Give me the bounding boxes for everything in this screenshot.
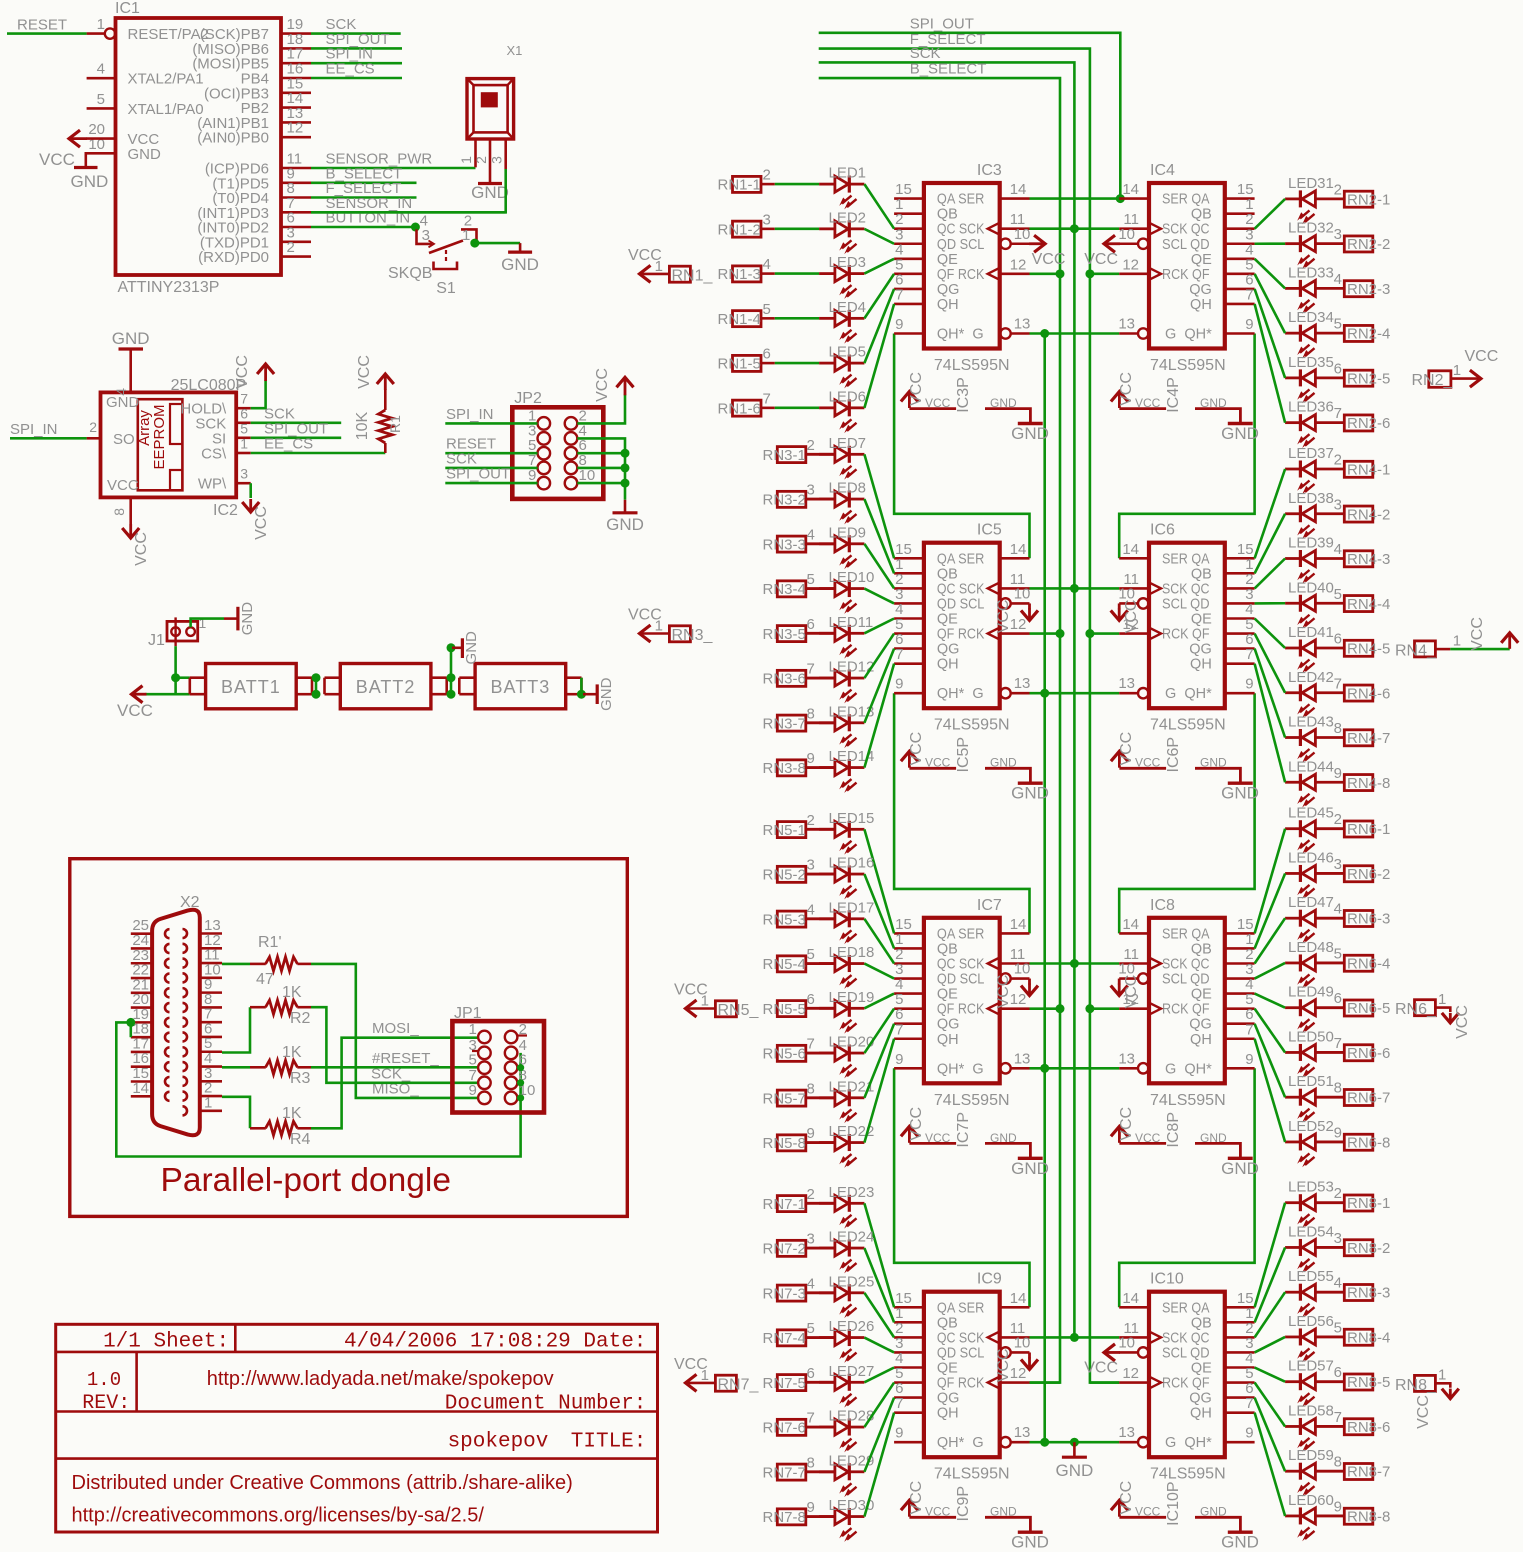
- svg-text:RN6-4: RN6-4: [1347, 955, 1390, 972]
- svg-text:LED46: LED46: [1288, 849, 1334, 866]
- svg-text:RN1-6: RN1-6: [718, 400, 761, 417]
- svg-text:IC9P: IC9P: [955, 1486, 972, 1522]
- svg-text:RN6-8: RN6-8: [1347, 1134, 1390, 1151]
- svg-text:4: 4: [1334, 271, 1342, 288]
- svg-text:5: 5: [807, 571, 815, 588]
- svg-text:IC2: IC2: [213, 502, 238, 519]
- svg-text:RN2-6: RN2-6: [1347, 415, 1390, 432]
- svg-text:RN1-2: RN1-2: [718, 221, 761, 238]
- svg-text:RN4-8: RN4-8: [1347, 775, 1390, 792]
- svg-text:J1: J1: [148, 632, 165, 649]
- svg-text:BATT3: BATT3: [491, 677, 551, 697]
- svg-text:R1': R1': [258, 934, 282, 951]
- svg-text:IC5P: IC5P: [955, 737, 972, 773]
- svg-text:QB: QB: [1191, 941, 1212, 957]
- svg-text:GND: GND: [1056, 1461, 1094, 1480]
- svg-text:6: 6: [807, 991, 815, 1008]
- svg-text:QF RCK: QF RCK: [937, 1002, 985, 1018]
- svg-text:3: 3: [1334, 496, 1342, 513]
- svg-text:QE: QE: [1191, 252, 1212, 268]
- svg-text:4: 4: [807, 1275, 815, 1292]
- svg-text:7: 7: [1245, 286, 1253, 303]
- svg-text:VCC: VCC: [1454, 1005, 1471, 1039]
- svg-text:IC5: IC5: [977, 522, 1002, 539]
- svg-text:4/04/2006 17:08:29 Date:: 4/04/2006 17:08:29 Date:: [344, 1331, 646, 1354]
- svg-text:QB: QB: [937, 566, 958, 582]
- svg-text:QB: QB: [937, 207, 958, 223]
- svg-text:4: 4: [763, 256, 771, 273]
- svg-text:VCC: VCC: [1118, 1481, 1135, 1515]
- svg-text:G: G: [1165, 1061, 1176, 1077]
- svg-text:QC SCK: QC SCK: [937, 1330, 985, 1346]
- svg-text:LED33: LED33: [1288, 264, 1334, 281]
- svg-text:9: 9: [469, 1082, 477, 1099]
- svg-text:QA SER: QA SER: [937, 926, 985, 942]
- svg-text:LED42: LED42: [1288, 669, 1334, 686]
- svg-text:1: 1: [1438, 991, 1446, 1008]
- svg-text:1: 1: [97, 16, 105, 33]
- svg-text:3: 3: [489, 156, 505, 164]
- svg-text:RN3-2: RN3-2: [763, 492, 806, 509]
- svg-text:RCK QF: RCK QF: [1162, 1002, 1210, 1018]
- svg-text:SCL QD: SCL QD: [1162, 1345, 1210, 1361]
- svg-text:1.0: 1.0: [87, 1369, 121, 1391]
- svg-text:RN2-2: RN2-2: [1347, 236, 1390, 253]
- svg-text:QF RCK: QF RCK: [937, 1376, 985, 1392]
- svg-text:MOSI_: MOSI_: [372, 1020, 419, 1037]
- svg-text:9: 9: [807, 1125, 815, 1142]
- svg-text:10: 10: [1014, 226, 1031, 243]
- svg-text:G: G: [972, 1435, 983, 1451]
- svg-text:QB: QB: [1191, 566, 1212, 582]
- svg-text:5: 5: [240, 420, 248, 436]
- svg-text:14: 14: [1122, 1290, 1139, 1307]
- svg-text:QH*: QH*: [937, 1061, 965, 1077]
- svg-text:VCC: VCC: [253, 506, 270, 540]
- svg-text:GND: GND: [239, 602, 256, 636]
- svg-text:SCL QD: SCL QD: [1162, 972, 1210, 988]
- svg-text:RN7-8: RN7-8: [763, 1509, 806, 1526]
- svg-text:IC6: IC6: [1150, 522, 1175, 539]
- svg-text:RN3-3: RN3-3: [763, 536, 806, 553]
- svg-text:1K: 1K: [282, 1105, 302, 1122]
- svg-text:VCC: VCC: [925, 1505, 951, 1519]
- svg-text:RN2_: RN2_: [1412, 372, 1454, 389]
- svg-text:RN1-5: RN1-5: [718, 356, 761, 373]
- svg-text:G: G: [972, 1061, 983, 1077]
- svg-text:LED6: LED6: [829, 388, 867, 405]
- svg-text:GND: GND: [1011, 1159, 1049, 1178]
- svg-text:G: G: [1165, 686, 1176, 702]
- svg-text:XTAL2/PA1: XTAL2/PA1: [128, 71, 204, 88]
- svg-text:47: 47: [256, 971, 274, 988]
- svg-text:74LS595N: 74LS595N: [934, 1092, 1010, 1109]
- svg-text:LED10: LED10: [829, 569, 875, 586]
- svg-text:RN7_: RN7_: [718, 1376, 760, 1393]
- svg-text:7: 7: [1334, 405, 1342, 422]
- svg-text:QH: QH: [1190, 1032, 1212, 1048]
- svg-text:QE: QE: [937, 1361, 958, 1377]
- svg-text:VCC: VCC: [594, 368, 611, 402]
- svg-text:13: 13: [1014, 316, 1031, 333]
- svg-text:5: 5: [1334, 1319, 1342, 1336]
- svg-text:RN3-7: RN3-7: [763, 715, 806, 732]
- svg-text:SER QA: SER QA: [1162, 551, 1210, 567]
- svg-text:8: 8: [1334, 720, 1342, 737]
- svg-text:9: 9: [807, 750, 815, 767]
- svg-text:VCC: VCC: [628, 247, 662, 264]
- svg-text:6: 6: [1334, 990, 1342, 1007]
- svg-text:LED8: LED8: [829, 480, 867, 497]
- svg-text:4: 4: [1334, 1275, 1342, 1292]
- svg-text:LED51: LED51: [1288, 1073, 1334, 1090]
- svg-text:RN6-6: RN6-6: [1347, 1045, 1390, 1062]
- svg-text:R3: R3: [290, 1070, 311, 1087]
- svg-text:74LS595N: 74LS595N: [1150, 1466, 1226, 1483]
- svg-text:RN5-5: RN5-5: [763, 1001, 806, 1018]
- svg-text:RN5-6: RN5-6: [763, 1046, 806, 1063]
- svg-text:LED50: LED50: [1288, 1028, 1334, 1045]
- svg-text:RN8_: RN8_: [1395, 1377, 1437, 1394]
- svg-text:9: 9: [895, 676, 903, 693]
- svg-text:RN7-7: RN7-7: [763, 1464, 806, 1481]
- svg-text:GND: GND: [112, 329, 150, 348]
- svg-text:G: G: [972, 327, 983, 343]
- svg-text:IC9: IC9: [977, 1271, 1002, 1288]
- svg-text:JP2: JP2: [514, 390, 542, 407]
- svg-text:RN8-3: RN8-3: [1347, 1285, 1390, 1302]
- svg-text:LED26: LED26: [829, 1318, 875, 1335]
- svg-text:RN4_: RN4_: [1395, 643, 1437, 660]
- svg-text:QD SCL: QD SCL: [937, 1345, 985, 1361]
- svg-text:14: 14: [132, 1080, 149, 1097]
- svg-text:SO: SO: [113, 431, 135, 448]
- svg-text:RN8-5: RN8-5: [1347, 1374, 1390, 1391]
- svg-text:BATT2: BATT2: [356, 677, 416, 697]
- svg-text:1/1 Sheet:: 1/1 Sheet:: [103, 1331, 229, 1354]
- svg-text:VCC: VCC: [995, 600, 1012, 634]
- svg-text:RN1-4: RN1-4: [718, 311, 761, 328]
- svg-text:RN5-3: RN5-3: [763, 911, 806, 928]
- svg-text:5: 5: [97, 91, 105, 108]
- svg-text:QH*: QH*: [937, 327, 965, 343]
- svg-text:IC3: IC3: [977, 162, 1002, 179]
- svg-text:7: 7: [807, 1036, 815, 1053]
- svg-text:QF RCK: QF RCK: [937, 267, 985, 283]
- svg-text:74LS595N: 74LS595N: [934, 357, 1010, 374]
- svg-text:7: 7: [1245, 1021, 1253, 1038]
- svg-text:7: 7: [895, 646, 903, 663]
- svg-text:QG: QG: [937, 282, 960, 298]
- svg-text:QA SER: QA SER: [937, 551, 985, 567]
- svg-text:RN6-7: RN6-7: [1347, 1090, 1390, 1107]
- svg-text:13: 13: [1118, 675, 1135, 692]
- svg-text:8: 8: [1334, 1080, 1342, 1097]
- svg-text:LED16: LED16: [829, 855, 875, 872]
- svg-text:VCC: VCC: [39, 150, 75, 169]
- svg-text:SCK QC: SCK QC: [1162, 581, 1210, 597]
- svg-text:13: 13: [1118, 316, 1135, 333]
- svg-text:4: 4: [97, 61, 105, 78]
- svg-text:SKQB: SKQB: [388, 265, 432, 282]
- svg-text:RN4-5: RN4-5: [1347, 641, 1390, 658]
- svg-text:IC3P: IC3P: [955, 377, 972, 413]
- svg-text:74LS595N: 74LS595N: [1150, 1092, 1226, 1109]
- svg-text:LED41: LED41: [1288, 624, 1334, 641]
- svg-text:VCC: VCC: [1084, 1359, 1118, 1376]
- svg-text:VCC: VCC: [925, 756, 951, 770]
- svg-text:12: 12: [287, 120, 304, 137]
- svg-text:http://www.ladyada.net/make/sp: http://www.ladyada.net/make/spokepov: [207, 1368, 554, 1390]
- svg-text:9: 9: [895, 316, 903, 333]
- svg-text:13: 13: [1118, 1424, 1135, 1441]
- svg-text:7: 7: [1334, 1035, 1342, 1052]
- svg-text:QB: QB: [1191, 207, 1212, 223]
- svg-text:RN4-6: RN4-6: [1347, 685, 1390, 702]
- svg-text:7: 7: [1245, 646, 1253, 663]
- svg-text:RESET: RESET: [17, 17, 67, 34]
- svg-text:RN1-3: RN1-3: [718, 266, 761, 283]
- svg-text:RN5-7: RN5-7: [763, 1090, 806, 1107]
- svg-text:RN6_: RN6_: [1395, 1001, 1437, 1018]
- svg-text:SPI_OUT: SPI_OUT: [910, 15, 974, 32]
- svg-text:EEPROM: EEPROM: [151, 404, 168, 469]
- svg-text:1: 1: [458, 156, 474, 164]
- svg-text:VCC: VCC: [908, 732, 925, 766]
- svg-text:8: 8: [807, 1080, 815, 1097]
- svg-text:74LS595N: 74LS595N: [1150, 357, 1226, 374]
- svg-text:X2: X2: [180, 894, 200, 911]
- svg-text:GND: GND: [1221, 1533, 1259, 1552]
- svg-text:RN7-6: RN7-6: [763, 1420, 806, 1437]
- svg-text:G: G: [972, 686, 983, 702]
- svg-text:LED7: LED7: [829, 435, 867, 452]
- svg-text:VCC: VCC: [1135, 1505, 1161, 1519]
- svg-text:LED39: LED39: [1288, 535, 1334, 552]
- svg-text:RN2-5: RN2-5: [1347, 370, 1390, 387]
- svg-text:2: 2: [1334, 181, 1342, 198]
- svg-text:LED3: LED3: [829, 254, 867, 271]
- svg-text:RCK QF: RCK QF: [1162, 267, 1210, 283]
- svg-text:LED1: LED1: [829, 165, 867, 182]
- svg-text:GND: GND: [1011, 1533, 1049, 1552]
- svg-text:R4: R4: [290, 1131, 311, 1148]
- svg-text:LED27: LED27: [829, 1363, 875, 1380]
- svg-text:IC4P: IC4P: [1165, 377, 1182, 413]
- svg-text:QE: QE: [1191, 612, 1212, 628]
- svg-text:6: 6: [1334, 631, 1342, 648]
- svg-text:GND: GND: [1011, 424, 1049, 443]
- svg-text:LED40: LED40: [1288, 579, 1334, 596]
- svg-text:LED2: LED2: [829, 209, 867, 226]
- svg-text:QG: QG: [1189, 1017, 1212, 1033]
- svg-text:LED45: LED45: [1288, 805, 1334, 822]
- svg-text:IC8: IC8: [1150, 897, 1175, 914]
- svg-text:2: 2: [1334, 452, 1342, 469]
- svg-text:RN5-4: RN5-4: [763, 956, 806, 973]
- svg-text:LED38: LED38: [1288, 490, 1334, 507]
- svg-text:1: 1: [469, 1021, 477, 1038]
- svg-text:14: 14: [1122, 541, 1139, 558]
- svg-text:QH*: QH*: [937, 1435, 965, 1451]
- svg-text:1K: 1K: [282, 1044, 302, 1061]
- svg-text:2: 2: [807, 812, 815, 829]
- svg-text:LED60: LED60: [1288, 1492, 1334, 1509]
- svg-text:GND: GND: [1221, 784, 1259, 803]
- svg-text:QD SCL: QD SCL: [937, 596, 985, 612]
- svg-text:SPI_OUT: SPI_OUT: [446, 466, 510, 483]
- svg-text:QB: QB: [1191, 1315, 1212, 1331]
- svg-text:RN4-4: RN4-4: [1347, 596, 1390, 613]
- svg-text:LED59: LED59: [1288, 1447, 1334, 1464]
- svg-text:RN5-8: RN5-8: [763, 1135, 806, 1152]
- svg-text:7: 7: [807, 661, 815, 678]
- svg-text:RN1_: RN1_: [672, 267, 714, 284]
- svg-text:7: 7: [895, 286, 903, 303]
- svg-text:RN8-6: RN8-6: [1347, 1419, 1390, 1436]
- svg-text:GND: GND: [128, 146, 162, 163]
- svg-text:IC7P: IC7P: [955, 1112, 972, 1148]
- svg-text:5: 5: [1334, 945, 1342, 962]
- svg-text:LED49: LED49: [1288, 984, 1334, 1001]
- svg-text:CS\: CS\: [201, 446, 227, 463]
- svg-text:3: 3: [240, 466, 248, 482]
- svg-text:JP1: JP1: [454, 1005, 482, 1022]
- svg-text:VCC: VCC: [925, 396, 951, 410]
- svg-text:IC4: IC4: [1150, 162, 1175, 179]
- svg-text:3: 3: [807, 857, 815, 874]
- svg-text:14: 14: [1122, 181, 1139, 198]
- svg-text:LED52: LED52: [1288, 1118, 1334, 1135]
- svg-text:9: 9: [1245, 1051, 1253, 1068]
- svg-text:QC SCK: QC SCK: [937, 222, 985, 238]
- svg-text:VCC: VCC: [1118, 1107, 1135, 1141]
- svg-text:QD SCL: QD SCL: [937, 972, 985, 988]
- svg-text:http://creativecommons.org/lic: http://creativecommons.org/licenses/by-s…: [72, 1505, 485, 1527]
- svg-text:R2: R2: [290, 1010, 311, 1027]
- svg-text:VCC: VCC: [1469, 617, 1486, 651]
- svg-text:LED25: LED25: [829, 1273, 875, 1290]
- svg-text:7: 7: [1334, 1409, 1342, 1426]
- svg-text:RN4-7: RN4-7: [1347, 730, 1390, 747]
- svg-text:13: 13: [1014, 1050, 1031, 1067]
- svg-text:LED43: LED43: [1288, 714, 1334, 731]
- svg-text:RN8-2: RN8-2: [1347, 1240, 1390, 1257]
- svg-text:4: 4: [807, 526, 815, 543]
- svg-text:QH*: QH*: [1184, 1435, 1212, 1451]
- svg-text:RN2-3: RN2-3: [1347, 281, 1390, 298]
- svg-text:10: 10: [1118, 226, 1135, 243]
- svg-text:RN3-1: RN3-1: [763, 447, 806, 464]
- svg-text:13: 13: [1118, 1050, 1135, 1067]
- svg-text:6: 6: [807, 616, 815, 633]
- svg-text:IC1: IC1: [115, 0, 140, 17]
- svg-text:RN6-3: RN6-3: [1347, 911, 1390, 928]
- svg-text:9: 9: [807, 1499, 815, 1516]
- svg-text:Distributed under Creative Com: Distributed under Creative Commons (attr…: [72, 1472, 573, 1494]
- svg-text:3: 3: [1334, 1230, 1342, 1247]
- svg-text:LED31: LED31: [1288, 175, 1334, 192]
- svg-text:RN3-8: RN3-8: [763, 760, 806, 777]
- svg-text:VCC: VCC: [234, 355, 251, 389]
- svg-text:VCC: VCC: [1118, 372, 1135, 406]
- svg-text:RN4-2: RN4-2: [1347, 506, 1390, 523]
- svg-text:RN3-5: RN3-5: [763, 626, 806, 643]
- svg-text:RN7-3: RN7-3: [763, 1285, 806, 1302]
- svg-text:RN6-2: RN6-2: [1347, 866, 1390, 883]
- svg-text:RN5-2: RN5-2: [763, 867, 806, 884]
- svg-text:SPI_IN: SPI_IN: [10, 421, 58, 438]
- svg-text:VCC: VCC: [628, 607, 662, 624]
- svg-text:QC SCK: QC SCK: [937, 581, 985, 597]
- svg-text:VCC: VCC: [1118, 732, 1135, 766]
- svg-text:LED15: LED15: [829, 810, 875, 827]
- svg-text:QH: QH: [937, 1032, 959, 1048]
- svg-text:QD SCL: QD SCL: [937, 237, 985, 253]
- svg-text:LED4: LED4: [829, 299, 867, 316]
- svg-text:RN1-1: RN1-1: [718, 177, 761, 194]
- svg-text:RN8-4: RN8-4: [1347, 1329, 1390, 1346]
- svg-text:14: 14: [1010, 916, 1027, 933]
- svg-text:3: 3: [1334, 226, 1342, 243]
- svg-text:LED58: LED58: [1288, 1402, 1334, 1419]
- svg-text:QG: QG: [937, 1391, 960, 1407]
- svg-text:13: 13: [1014, 1424, 1031, 1441]
- svg-text:74LS595N: 74LS595N: [934, 717, 1010, 734]
- svg-text:SER QA: SER QA: [1162, 1300, 1210, 1316]
- svg-text:3: 3: [422, 227, 430, 244]
- svg-text:GND: GND: [71, 172, 109, 191]
- svg-text:5: 5: [1334, 586, 1342, 603]
- svg-text:LED23: LED23: [829, 1184, 875, 1201]
- svg-text:VCC: VCC: [356, 355, 373, 389]
- svg-text:3: 3: [807, 482, 815, 499]
- svg-text:IC8P: IC8P: [1165, 1112, 1182, 1148]
- svg-text:B_SELECT: B_SELECT: [910, 61, 987, 78]
- svg-text:9: 9: [895, 1425, 903, 1442]
- svg-text:QH: QH: [937, 1406, 959, 1422]
- svg-text:VCC: VCC: [117, 701, 153, 720]
- svg-text:XTAL1/PA0: XTAL1/PA0: [128, 101, 204, 118]
- svg-text:LED48: LED48: [1288, 939, 1334, 956]
- svg-text:VCC: VCC: [908, 1481, 925, 1515]
- svg-text:12: 12: [1010, 991, 1027, 1008]
- svg-text:RN7-2: RN7-2: [763, 1241, 806, 1258]
- svg-text:6: 6: [763, 346, 771, 363]
- svg-text:6: 6: [807, 1365, 815, 1382]
- svg-text:RCK QF: RCK QF: [1162, 627, 1210, 643]
- svg-text:1: 1: [204, 1094, 212, 1111]
- svg-text:VCC: VCC: [995, 1349, 1012, 1383]
- svg-text:RN2-1: RN2-1: [1347, 191, 1390, 208]
- svg-text:14: 14: [1010, 1290, 1027, 1307]
- svg-text:LED56: LED56: [1288, 1313, 1334, 1330]
- svg-text:QG: QG: [937, 642, 960, 658]
- svg-text:RN4-1: RN4-1: [1347, 462, 1390, 479]
- svg-text:VCC: VCC: [925, 1131, 951, 1145]
- svg-text:#RESET_: #RESET_: [372, 1050, 439, 1067]
- svg-text:74LS595N: 74LS595N: [1150, 717, 1226, 734]
- svg-text:14: 14: [1010, 541, 1027, 558]
- svg-text:2: 2: [1334, 1185, 1342, 1202]
- svg-text:VCC: VCC: [1032, 251, 1066, 268]
- svg-text:2: 2: [1334, 811, 1342, 828]
- svg-text:VCC: VCC: [908, 372, 925, 406]
- svg-text:9: 9: [1334, 1498, 1342, 1515]
- svg-text:Document Number:: Document Number:: [445, 1393, 647, 1416]
- svg-text:14: 14: [1010, 181, 1027, 198]
- svg-text:3: 3: [1334, 856, 1342, 873]
